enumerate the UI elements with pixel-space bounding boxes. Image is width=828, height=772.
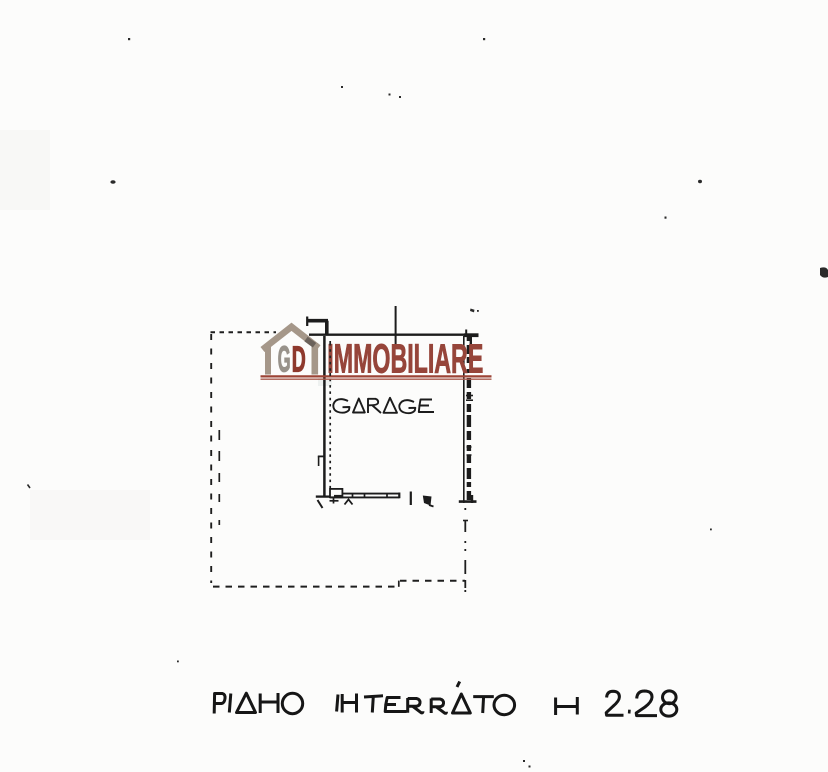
svg-text:IMMOBILIARE: IMMOBILIARE [327, 335, 483, 381]
svg-text:D: D [292, 339, 306, 380]
svg-text:G: G [278, 339, 291, 380]
